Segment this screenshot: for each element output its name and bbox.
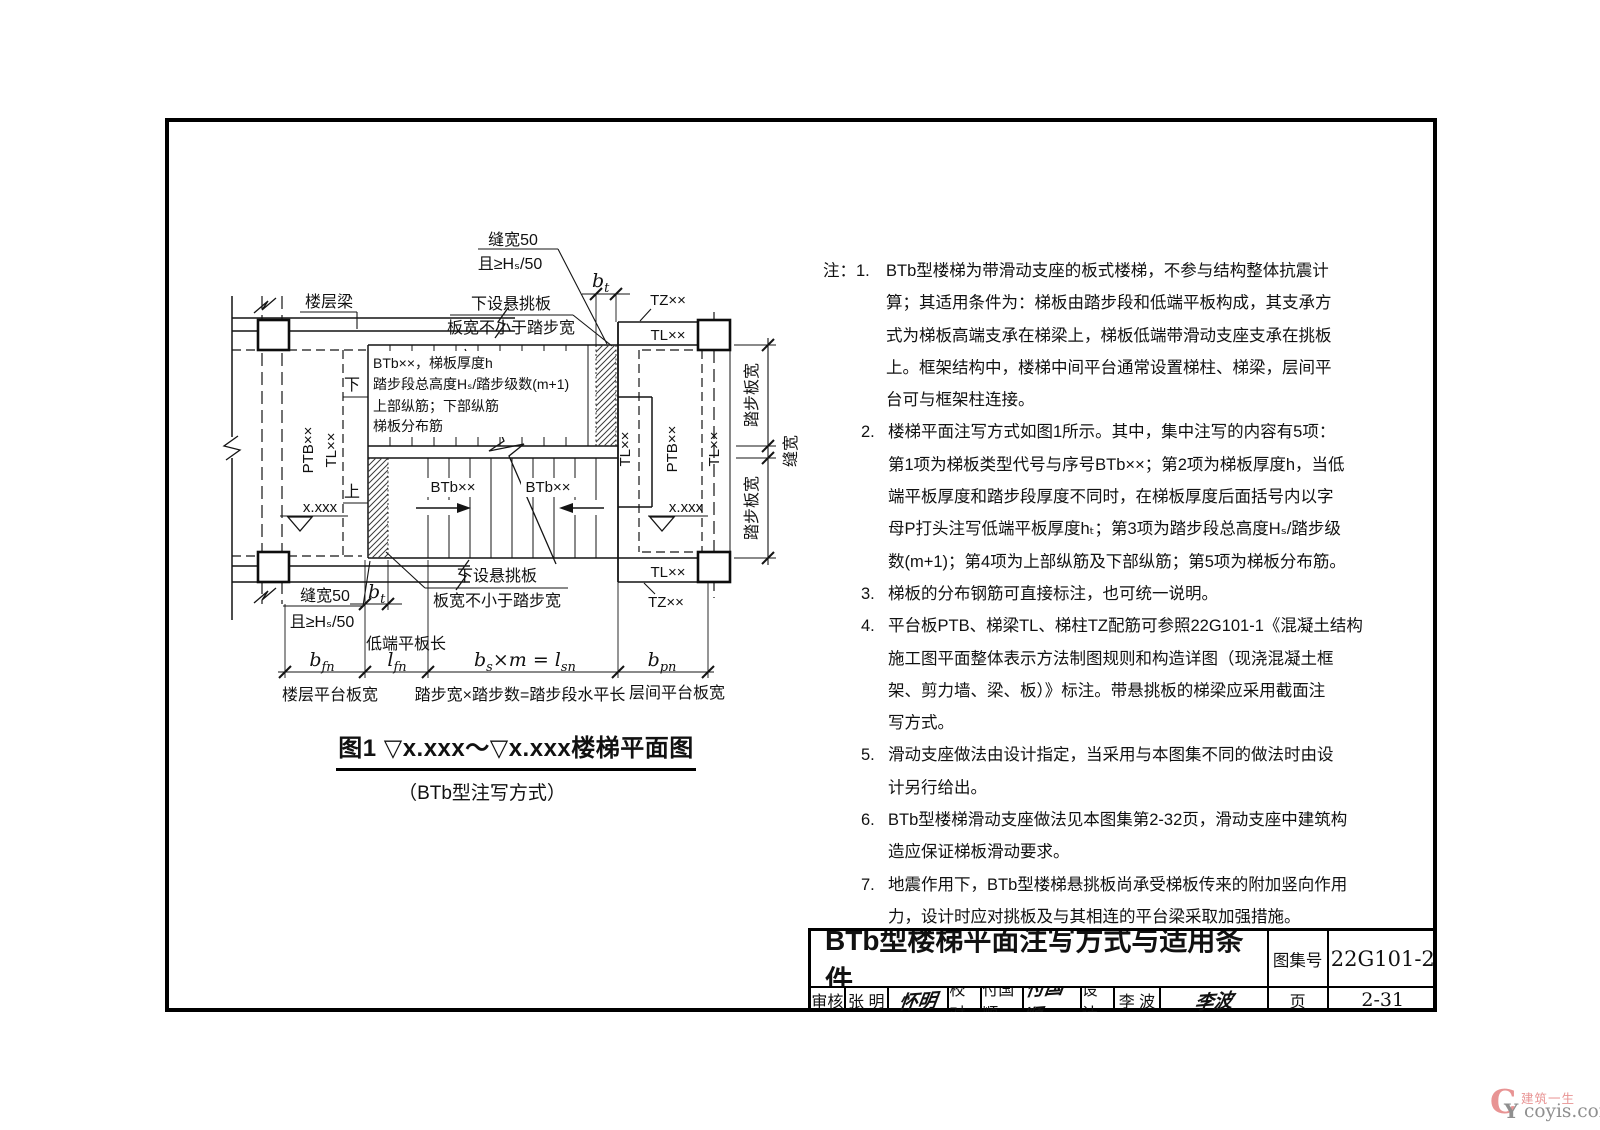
designer-name: 李 波 — [1113, 988, 1160, 1012]
tl-label-right: TL×× — [706, 431, 723, 466]
down-direction-label: 下 — [344, 377, 360, 394]
column-top-left — [258, 320, 289, 350]
gap-note-top-line1: 缝宽50 — [488, 231, 538, 249]
note-item-2: 2. 楼梯平面注写方式如图1所示。其中，集中注写的内容有5项： 第1项为梯板类型… — [823, 416, 1343, 577]
note-item-7: 7. 地震作用下，BTb型楼梯悬挑板尚承受梯板传来的附加竖向作用 力，设计时应对… — [823, 869, 1343, 934]
floor-beam-label: 楼层梁 — [305, 293, 353, 311]
figure-caption-title: 图1 ▽x.xxx～▽x.xxx楼梯平面图 — [336, 728, 696, 771]
left-slab-edge — [224, 296, 240, 620]
gap-note-top-line2: 且≥Hₛ/50 — [478, 256, 543, 273]
cantilever-note-bottom-line2: 板宽不小于踏步宽 — [433, 592, 561, 610]
flight-annotation-line1: BTb××，梯板厚度h — [373, 355, 493, 371]
figure-caption: 图1 ▽x.xxx～▽x.xxx楼梯平面图 （BTb型注写方式） — [322, 728, 710, 805]
bt-dim-top: bt — [592, 270, 610, 296]
reviewer-signature: 怀明 — [887, 988, 948, 1012]
watermark-site-url: coyis.com — [1524, 1101, 1600, 1122]
axis-label-floor-platform: 楼层平台板宽 — [282, 686, 378, 704]
page-label: 页 — [1267, 988, 1327, 1012]
note-number: 5. — [861, 739, 888, 771]
atlas-page: 缝宽50 且≥Hₛ/50 bt 楼层梁 下设悬挑板 板宽不小于踏步宽 TZ×× … — [0, 0, 1600, 1130]
cantilever-note-bottom-line1: 下设悬挑板 — [457, 567, 537, 585]
bfn-dim-label: bfn — [309, 649, 334, 675]
tl-label-bottom: TL×× — [650, 564, 685, 581]
column-top-right — [698, 320, 730, 350]
checker-label: 校对 — [947, 988, 980, 1012]
flight-annotation-line3: 上部纵筋；下部纵筋 — [373, 398, 499, 415]
column-bottom-left — [258, 552, 289, 582]
note-text: 滑动支座做法由设计指定，当采用与本图集不同的做法时由设 计另行给出。 — [888, 739, 1334, 804]
bpn-dim-label: bpn — [648, 649, 677, 675]
atlas-number-label: 图集号 — [1267, 931, 1327, 986]
tl-label-top: TL×× — [650, 327, 685, 344]
elevation-marker-left — [280, 516, 348, 531]
note-item-4: 4. 平台板PTB、梯梁TL、梯柱TZ配筋可参照22G101-1《混凝土结构 施… — [823, 610, 1343, 739]
note-text: 平台板PTB、梯梁TL、梯柱TZ配筋可参照22G101-1《混凝土结构 施工图平… — [888, 610, 1363, 739]
note-text: 楼梯平面注写方式如图1所示。其中，集中注写的内容有5项： 第1项为梯板类型代号与… — [888, 416, 1346, 577]
elevation-value-right: x.xxx — [669, 499, 704, 516]
bt-dim-bottom: bt — [368, 581, 386, 607]
note-number: 3. — [861, 578, 888, 610]
axis-label-steps: 踏步宽×踏步数=踏步段水平长 — [415, 686, 626, 704]
centerline-break-bottom — [254, 588, 276, 603]
note-text: 梯板的分布钢筋可直接标注，也可统一说明。 — [888, 578, 1218, 610]
designer-signature: 李波 — [1159, 988, 1266, 1012]
elevation-marker-right — [648, 516, 708, 531]
tread-width-label-bottom: 踏步板宽 — [743, 476, 761, 540]
checker-signature: 付国顺 — [1022, 988, 1080, 1012]
ptb-label-right: PTB×× — [664, 426, 681, 473]
sliding-support-hatch-top — [596, 345, 616, 446]
low-end-slab-length-label: 低端平板长 — [366, 635, 446, 653]
sheet-title: BTb型楼梯平面注写方式与适用条件 — [811, 931, 1267, 986]
column-bottom-right — [698, 552, 730, 582]
checker-name: 付国顺 — [980, 988, 1022, 1012]
bsm-dim-label: bs×m = lsn — [474, 649, 576, 675]
note-number: 2. — [861, 416, 888, 448]
gap-note-bottom-line1: 缝宽50 — [300, 587, 350, 605]
note-number: 4. — [861, 610, 888, 642]
gap-width-label-right: 缝宽 — [782, 435, 800, 467]
tl-label-mid: TL×× — [617, 431, 634, 466]
tl-label-left: TL×× — [323, 432, 340, 467]
ptb-label-left: PTB×× — [300, 427, 317, 474]
note-item-5: 5. 滑动支座做法由设计指定，当采用与本图集不同的做法时由设 计另行给出。 — [823, 739, 1343, 804]
designer-label: 设计 — [1080, 988, 1113, 1012]
figure-caption-subtitle: （BTb型注写方式） — [288, 778, 676, 805]
site-watermark: C Y 建筑一生 coyis.com — [1490, 1084, 1595, 1128]
tz-label-bottom: TZ×× — [648, 594, 684, 611]
tread-width-label-top: 踏步板宽 — [743, 363, 761, 427]
note-text: BTb型楼梯为带滑动支座的板式楼梯，不参与结构整体抗震计 算；其适用条件为：梯板… — [886, 255, 1332, 416]
title-block: BTb型楼梯平面注写方式与适用条件 图集号 22G101-2 审核 张 明 怀明… — [808, 928, 1437, 1012]
flight-annotation-line2: 踏步段总高度Hₛ/踏步级数(m+1) — [373, 376, 569, 392]
tz-label-top: TZ×× — [650, 292, 686, 309]
atlas-number-value: 22G101-2 — [1327, 931, 1437, 986]
centerline-break-top — [254, 298, 276, 313]
btb-label-2: BTb×× — [525, 479, 570, 496]
gap-note-bottom-line2: 且≥Hₛ/50 — [290, 614, 355, 631]
up-direction-label: 上 — [344, 483, 360, 501]
note-text: 地震作用下，BTb型楼梯悬挑板尚承受梯板传来的附加竖向作用 力，设计时应对挑板及… — [888, 869, 1347, 934]
reviewer-label: 审核 — [811, 988, 844, 1012]
note-item-6: 6. BTb型楼梯滑动支座做法见本图集第2-32页，滑动支座中建筑构 造应保证梯… — [823, 804, 1343, 869]
flight-annotation-line4: 梯板分布筋 — [373, 418, 443, 434]
reviewer-name: 张 明 — [844, 988, 887, 1012]
note-item-3: 3. 梯板的分布钢筋可直接标注，也可统一说明。 — [823, 578, 1343, 610]
note-number: 注：1. — [823, 255, 886, 287]
notes-list: 注：1. BTb型楼梯为带滑动支座的板式楼梯，不参与结构整体抗震计 算；其适用条… — [823, 255, 1343, 933]
sliding-support-hatch-bottom — [368, 458, 388, 558]
btb-label-1: BTb×× — [430, 479, 475, 496]
watermark-y-logo: Y — [1504, 1099, 1518, 1123]
note-item-1: 注：1. BTb型楼梯为带滑动支座的板式楼梯，不参与结构整体抗震计 算；其适用条… — [823, 255, 1343, 416]
cantilever-note-top-line1: 下设悬挑板 — [471, 295, 551, 313]
cantilever-note-top-line2: 板宽不小于踏步宽 — [447, 319, 575, 337]
axis-label-mid-platform: 层间平台板宽 — [629, 684, 725, 702]
note-number: 7. — [861, 869, 888, 901]
note-number: 6. — [861, 804, 888, 836]
elevation-value-left: x.xxx — [303, 499, 338, 516]
page-number: 2-31 — [1327, 988, 1437, 1012]
note-text: BTb型楼梯滑动支座做法见本图集第2-32页，滑动支座中建筑构 造应保证梯板滑动… — [888, 804, 1347, 869]
